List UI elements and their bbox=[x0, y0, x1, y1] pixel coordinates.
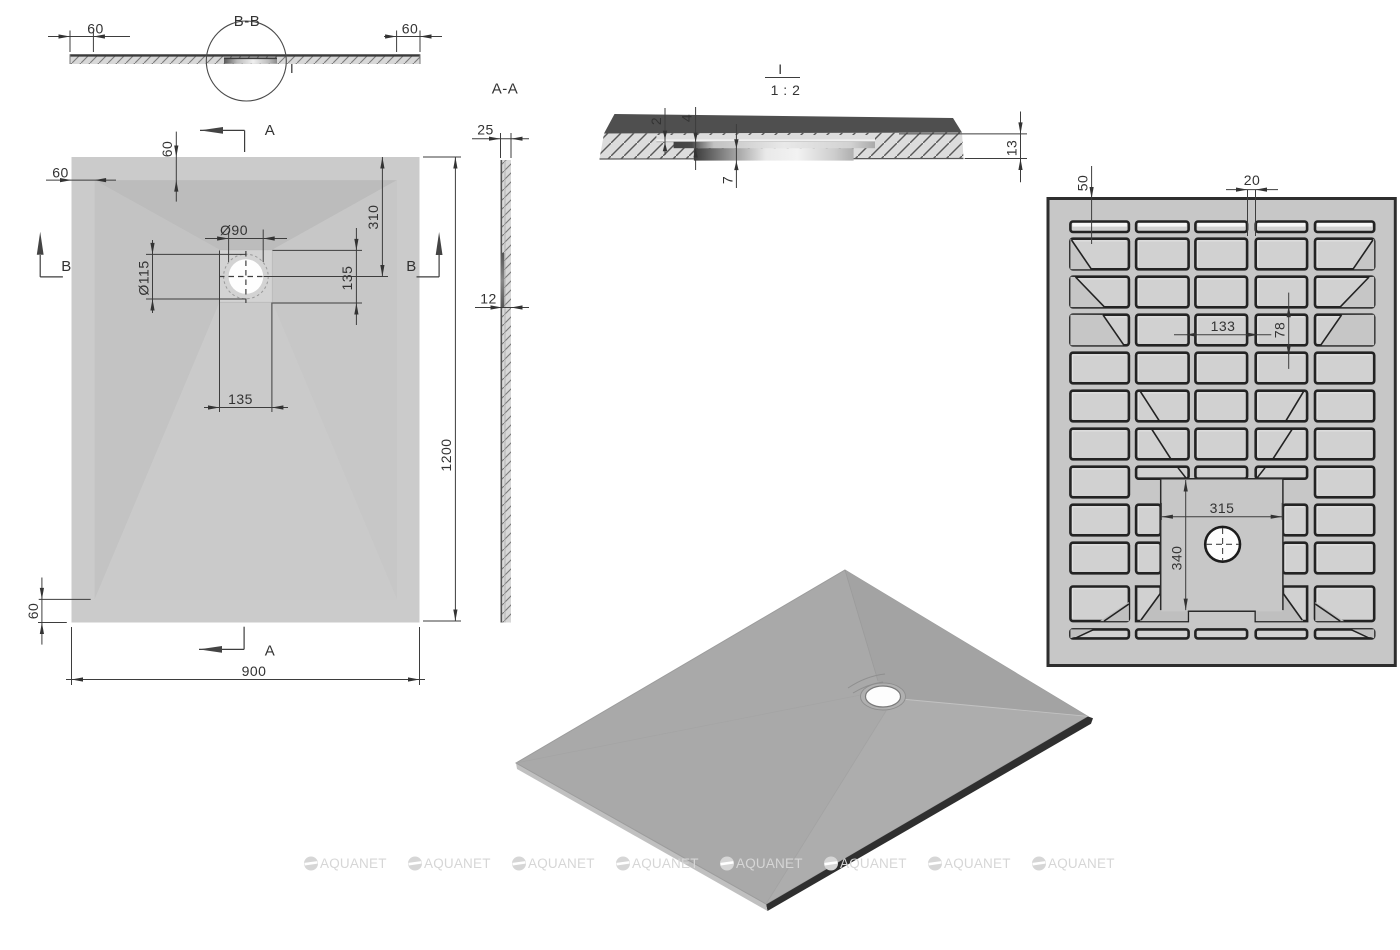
svg-text:60: 60 bbox=[25, 603, 41, 620]
svg-text:AQUANET: AQUANET bbox=[320, 856, 387, 871]
svg-text:900: 900 bbox=[242, 663, 267, 679]
svg-text:340: 340 bbox=[1169, 546, 1185, 571]
svg-text:7: 7 bbox=[719, 176, 735, 184]
svg-text:13: 13 bbox=[1004, 140, 1020, 157]
svg-text:A: A bbox=[265, 643, 276, 660]
svg-text:133: 133 bbox=[1211, 318, 1236, 334]
svg-text:2: 2 bbox=[648, 117, 664, 125]
svg-text:B: B bbox=[61, 258, 72, 275]
svg-text:60: 60 bbox=[87, 21, 104, 37]
svg-text:AQUANET: AQUANET bbox=[840, 856, 907, 871]
svg-text:315: 315 bbox=[1210, 500, 1235, 516]
svg-text:60: 60 bbox=[159, 141, 175, 158]
svg-text:AQUANET: AQUANET bbox=[528, 856, 595, 871]
svg-text:AQUANET: AQUANET bbox=[944, 856, 1011, 871]
svg-text:AQUANET: AQUANET bbox=[1048, 856, 1115, 871]
svg-text:A-A: A-A bbox=[492, 81, 519, 98]
svg-text:I: I bbox=[778, 61, 782, 77]
svg-text:25: 25 bbox=[477, 122, 494, 138]
svg-text:Ø90: Ø90 bbox=[220, 222, 248, 238]
svg-text:4: 4 bbox=[679, 114, 695, 122]
svg-text:B: B bbox=[406, 258, 417, 275]
svg-text:B-B: B-B bbox=[234, 13, 261, 30]
svg-text:310: 310 bbox=[365, 205, 381, 230]
svg-text:135: 135 bbox=[339, 266, 355, 291]
svg-text:50: 50 bbox=[1075, 175, 1091, 192]
svg-text:A: A bbox=[265, 122, 276, 139]
svg-text:AQUANET: AQUANET bbox=[632, 856, 699, 871]
svg-text:AQUANET: AQUANET bbox=[736, 856, 803, 871]
svg-text:AQUANET: AQUANET bbox=[424, 856, 491, 871]
svg-text:12: 12 bbox=[480, 291, 497, 307]
svg-text:135: 135 bbox=[228, 391, 253, 407]
svg-text:60: 60 bbox=[402, 21, 419, 37]
svg-text:1 : 2: 1 : 2 bbox=[771, 82, 801, 98]
svg-text:20: 20 bbox=[1244, 172, 1261, 188]
svg-text:60: 60 bbox=[52, 165, 69, 181]
svg-text:78: 78 bbox=[1272, 322, 1288, 339]
svg-text:1200: 1200 bbox=[438, 438, 454, 471]
svg-text:I: I bbox=[290, 61, 294, 76]
svg-text:Ø115: Ø115 bbox=[136, 260, 152, 295]
